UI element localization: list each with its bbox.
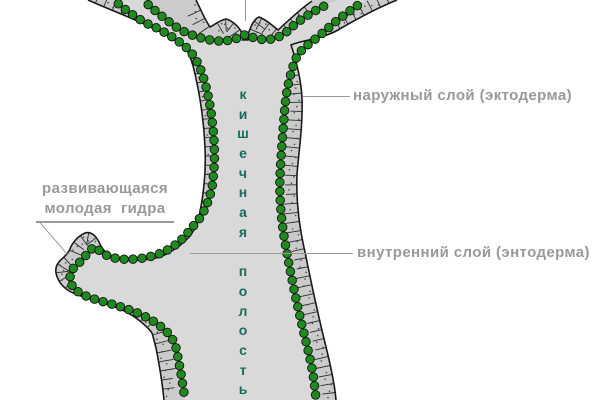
endoderm-cell [308,364,317,373]
cavity-label-letter: ш [233,124,253,144]
endoderm-cell [210,163,219,172]
endoderm-cell [210,154,219,163]
endoderm-cell [95,246,104,255]
endoderm-cell [182,43,191,52]
endoderm-cell [125,305,134,314]
endoderm-cell [99,297,108,306]
endoderm-cell [276,178,285,187]
cavity-label-letter: и [233,105,253,125]
endoderm-cell [353,1,362,10]
endoderm-cell [177,370,186,379]
endoderm-cell [116,302,125,311]
endoderm-cell [306,355,315,364]
hydra-cross-section-diagram: наружный слой (эктодерма) внутренний сло… [0,0,600,400]
endoderm-cell [208,181,217,190]
inner-layer-label: внутренний слой (энтодерма) [357,243,590,263]
outer-layer-label: наружный слой (эктодерма) [353,86,572,106]
endoderm-cell [294,302,303,311]
cavity-label-letter: я [233,223,253,243]
endoderm-cell [297,46,306,55]
endoderm-cell [144,20,153,29]
endoderm-cell [346,7,355,16]
gastric-cavity-vertical-label: кишечнаяполость [233,85,253,400]
endoderm-cell [223,36,232,45]
endoderm-cell [277,214,286,223]
endoderm-cell [108,300,117,309]
endoderm-cell [289,62,298,71]
endoderm-cell [149,317,158,326]
endoderm-cell [290,285,299,294]
endoderm-cell [277,151,286,160]
mouth-leader-line [245,0,246,21]
endoderm-cell [195,214,204,223]
developing-bud-label: развивающаясямолодая гидра [36,179,174,223]
endoderm-cell [289,21,298,30]
endoderm-cell [298,320,307,329]
endoderm-cell [280,106,289,115]
endoderm-cell [339,12,348,21]
cavity-label-letter: п [233,262,253,282]
endoderm-cell [206,190,215,199]
endoderm-cell [82,292,91,301]
endoderm-cell [168,32,177,41]
cavity-label-letter [233,243,253,263]
endoderm-cell [114,0,123,8]
ectoderm-leader-line [303,96,350,97]
endoderm-cell [189,221,198,230]
endoderm-cell [276,187,285,196]
endoderm-leader-line [190,253,353,254]
bud-label-line1: развивающаяся [42,180,168,197]
cavity-label-letter: т [233,361,253,381]
endoderm-cell [284,80,293,89]
cavity-label-letter: ч [233,164,253,184]
endoderm-cell [193,57,202,66]
endoderm-cell [214,37,223,46]
endoderm-cell [151,6,160,15]
endoderm-cell [311,391,320,400]
endoderm-cell [302,338,311,347]
endoderm-cell [66,272,75,281]
endoderm-cell [155,250,164,259]
endoderm-cell [286,267,295,276]
endoderm-cell [178,379,187,388]
endoderm-cell [207,109,216,118]
endoderm-cell [281,97,290,106]
endoderm-cell [128,10,137,19]
cavity-label-letter: о [233,321,253,341]
endoderm-cell [311,6,320,15]
endoderm-cell [277,205,286,214]
endoderm-cell [280,232,289,241]
endoderm-cell [276,160,285,169]
endoderm-cell [197,66,206,75]
endoderm-cell [280,115,289,124]
cavity-label-letter: о [233,282,253,302]
endoderm-cell [296,16,305,25]
endoderm-cell [310,382,319,391]
endoderm-cell [68,281,77,290]
endoderm-cell [205,36,214,45]
endoderm-cell [165,18,174,27]
endoderm-cell [172,344,181,353]
endoderm-cell [206,100,215,109]
endoderm-cell [174,352,183,361]
cavity-label-letter: н [233,183,253,203]
endoderm-cell [278,223,287,232]
endoderm-cell [199,74,208,83]
endoderm-cell [249,33,258,42]
endoderm-cell [172,23,181,32]
endoderm-cell [121,5,130,14]
endoderm-cell [278,133,287,142]
endoderm-cell [284,258,293,267]
endoderm-cell [300,329,309,338]
endoderm-cell [240,31,249,40]
cavity-label-letter: л [233,302,253,322]
endoderm-cell [138,254,147,263]
endoderm-cell [90,295,99,304]
endoderm-cell [120,255,129,264]
endoderm-cell [304,346,313,355]
endoderm-cell [288,276,297,285]
cavity-label-letter: с [233,341,253,361]
cavity-label-letter: е [233,144,253,164]
endoderm-cell [141,313,150,322]
endoderm-cell [292,54,301,63]
endoderm-cell [209,172,218,181]
endoderm-cell [210,136,219,145]
endoderm-cell [163,246,172,255]
endoderm-cell [276,196,285,205]
cavity-label-letter: а [233,203,253,223]
endoderm-cell [266,35,275,44]
endoderm-cell [197,34,206,43]
endoderm-cell [102,251,111,260]
endoderm-cell [232,34,241,43]
cavity-label-letter: ь [233,380,253,400]
endoderm-cell [279,124,288,133]
endoderm-cell [204,92,213,101]
endoderm-cell [309,373,318,382]
endoderm-cell [278,142,287,151]
endoderm-cell [304,11,313,20]
endoderm-cell [331,17,340,26]
endoderm-cell [202,83,211,92]
endoderm-cell [147,252,156,261]
bud-label-line2: молодая гидра [44,200,165,217]
endoderm-cell [318,29,327,38]
endoderm-cell [111,254,120,263]
endoderm-cell [175,361,184,370]
endoderm-cell [156,322,165,331]
endoderm-cell [180,388,189,397]
cavity-label-letter: к [233,85,253,105]
endoderm-cell [296,311,305,320]
endoderm-cell [319,2,328,11]
endoderm-cell [136,15,145,24]
endoderm-cell [152,24,161,33]
endoderm-cell [208,118,217,127]
endoderm-cell [200,207,209,216]
endoderm-cell [286,71,295,80]
endoderm-cell [257,35,266,44]
endoderm-cell [175,38,184,47]
endoderm-cell [282,88,291,97]
endoderm-cell [129,255,138,264]
endoderm-cell [275,32,284,41]
endoderm-cell [203,198,212,207]
endoderm-cell [160,28,169,37]
endoderm-cell [281,241,290,250]
endoderm-cell [168,335,177,344]
endoderm-cell [292,294,301,303]
endoderm-cell [158,12,167,21]
endoderm-cell [133,309,142,318]
endoderm-cell [180,27,189,36]
endoderm-cell [210,145,219,154]
endoderm-cell [276,169,285,178]
endoderm-cell [188,31,197,40]
endoderm-cell [311,35,320,44]
endoderm-cell [209,127,218,136]
